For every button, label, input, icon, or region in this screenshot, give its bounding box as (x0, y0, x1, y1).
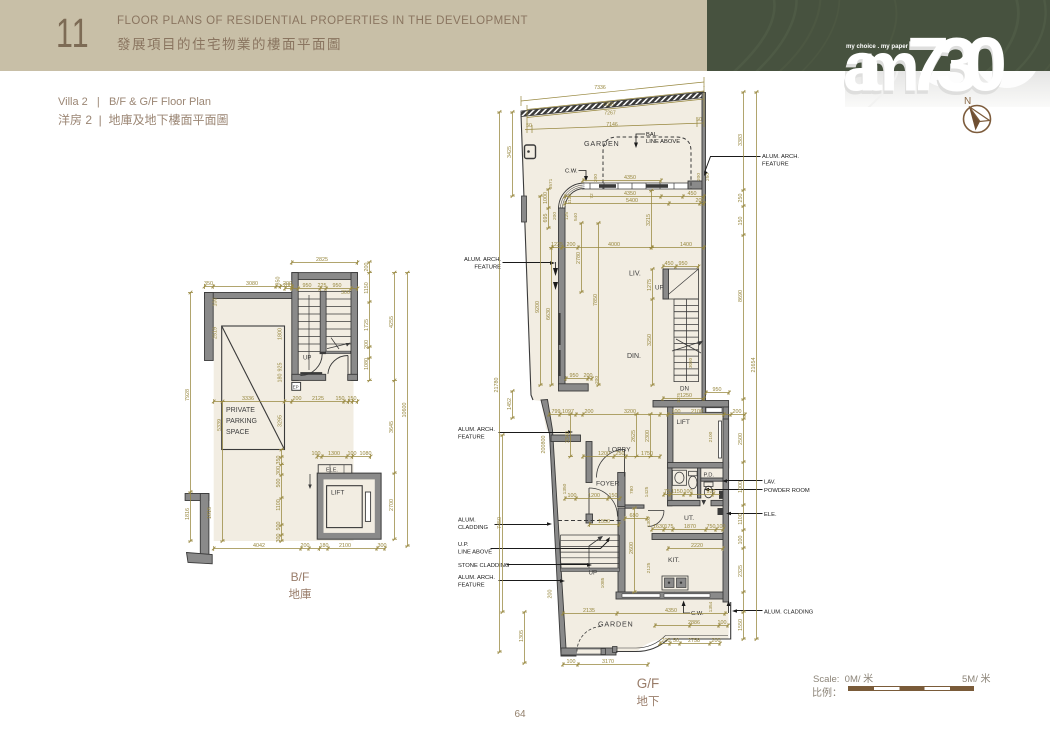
svg-text:7267: 7267 (604, 111, 616, 117)
svg-text:UP: UP (589, 570, 598, 577)
svg-text:50: 50 (526, 123, 532, 129)
svg-text:50: 50 (696, 117, 702, 123)
svg-text:2758: 2758 (688, 638, 700, 644)
svg-text:1100: 1100 (276, 499, 282, 511)
svg-text:1235: 1235 (551, 242, 563, 248)
svg-text:2220: 2220 (691, 543, 703, 549)
svg-text:200: 200 (712, 638, 721, 644)
svg-text:200: 200 (301, 543, 310, 549)
svg-text:2100: 2100 (339, 543, 351, 549)
svg-text:4350: 4350 (624, 175, 636, 181)
svg-text:5400: 5400 (626, 198, 638, 204)
svg-text:3645: 3645 (389, 421, 395, 433)
svg-text:1305: 1305 (519, 630, 525, 642)
svg-text:925: 925 (707, 489, 716, 495)
svg-text:BAL.: BAL. (646, 132, 659, 138)
svg-text:100: 100 (718, 620, 727, 626)
svg-text:200: 200 (696, 173, 702, 181)
svg-text:450: 450 (688, 191, 697, 197)
svg-text:1300: 1300 (646, 516, 652, 527)
svg-text:350: 350 (276, 456, 282, 465)
svg-text:SPACE: SPACE (226, 429, 250, 436)
svg-text:1816: 1816 (207, 507, 213, 519)
svg-text:950: 950 (570, 373, 579, 379)
svg-text:4000: 4000 (608, 242, 620, 248)
svg-text:150: 150 (336, 396, 345, 402)
svg-text:9200: 9200 (535, 301, 541, 313)
svg-text:3050: 3050 (688, 357, 693, 368)
svg-text:1350: 1350 (276, 277, 282, 289)
svg-text:950: 950 (679, 261, 688, 267)
svg-text:695: 695 (543, 214, 549, 223)
svg-text:225: 225 (318, 283, 327, 289)
svg-text:7336: 7336 (594, 85, 606, 91)
svg-text:300: 300 (276, 534, 282, 543)
svg-text:LIV.: LIV. (629, 271, 641, 278)
svg-text:925: 925 (278, 363, 284, 372)
svg-text:POWDER ROOM: POWDER ROOM (764, 488, 810, 494)
svg-text:7146: 7146 (606, 122, 618, 128)
svg-text:500: 500 (276, 479, 282, 488)
svg-text:LINE ABOVE: LINE ABOVE (646, 139, 680, 145)
svg-text:200: 200 (283, 281, 292, 287)
svg-text:150: 150 (348, 396, 357, 402)
svg-text:1725: 1725 (364, 319, 370, 331)
svg-text:3250: 3250 (647, 334, 653, 346)
svg-text:200: 200 (548, 590, 554, 599)
svg-text:UT.: UT. (684, 515, 694, 522)
svg-text:10600: 10600 (402, 403, 408, 418)
svg-text:ELE.: ELE. (326, 468, 338, 474)
svg-text:950: 950 (303, 283, 312, 289)
svg-text:200: 200 (567, 242, 576, 248)
svg-text:1550: 1550 (598, 519, 610, 525)
svg-text:7450: 7450 (497, 517, 503, 529)
svg-text:1085: 1085 (600, 577, 606, 588)
svg-text:750: 750 (707, 524, 716, 530)
svg-text:1300: 1300 (328, 451, 340, 457)
svg-text:200: 200 (585, 409, 594, 415)
svg-text:5339: 5339 (217, 419, 223, 431)
svg-text:2519: 2519 (213, 327, 219, 339)
svg-text:300: 300 (276, 466, 282, 475)
svg-text:GARDEN: GARDEN (598, 620, 634, 629)
svg-text:1425: 1425 (644, 486, 650, 497)
svg-text:DIN.: DIN. (627, 353, 641, 360)
svg-text:100: 100 (684, 489, 693, 495)
svg-text:3170: 3170 (602, 659, 614, 665)
svg-text:800: 800 (541, 436, 547, 445)
svg-text:7260: 7260 (602, 102, 614, 108)
svg-text:LINE ABOVE: LINE ABOVE (458, 550, 492, 556)
svg-text:3336: 3336 (242, 396, 254, 402)
svg-text:780: 780 (629, 486, 635, 494)
svg-text:200: 200 (584, 373, 593, 379)
svg-text:2300: 2300 (645, 430, 651, 442)
svg-text:2125: 2125 (312, 396, 324, 402)
svg-text:P.D.: P.D. (704, 473, 715, 479)
svg-text:21654: 21654 (751, 358, 757, 373)
svg-text:4042: 4042 (253, 543, 265, 549)
svg-text:1150: 1150 (364, 282, 370, 294)
svg-text:1075: 1075 (676, 392, 681, 403)
svg-text:250: 250 (616, 451, 625, 457)
svg-text:680: 680 (630, 513, 639, 519)
svg-text:2625: 2625 (631, 430, 637, 442)
svg-text:FEATURE: FEATURE (762, 162, 789, 168)
svg-text:100: 100 (717, 524, 726, 530)
svg-text:4350: 4350 (665, 608, 677, 614)
svg-text:250: 250 (738, 194, 744, 203)
svg-text:CLADDING: CLADDING (458, 525, 488, 531)
svg-text:950: 950 (333, 283, 342, 289)
svg-text:1080: 1080 (364, 358, 370, 370)
svg-text:FOYER: FOYER (596, 481, 620, 488)
svg-text:4255: 4255 (389, 316, 395, 328)
svg-text:200: 200 (662, 638, 671, 644)
svg-text:FEATURE: FEATURE (474, 265, 501, 271)
svg-text:2886: 2886 (688, 620, 700, 626)
svg-text:200: 200 (364, 263, 370, 272)
svg-text:ALUM. CLADDING: ALUM. CLADDING (764, 610, 814, 616)
svg-text:ALUM.: ALUM. (458, 518, 476, 524)
svg-text:1139: 1139 (567, 194, 573, 205)
svg-text:799: 799 (552, 409, 561, 415)
svg-text:100: 100 (738, 536, 744, 545)
svg-text:UP: UP (655, 285, 664, 292)
svg-text:UP: UP (303, 355, 311, 361)
svg-text:U.P.: U.P. (458, 542, 469, 548)
svg-text:1354: 1354 (708, 601, 714, 612)
svg-text:200: 200 (733, 409, 742, 415)
svg-text:1000: 1000 (543, 192, 549, 204)
svg-text:LAV.: LAV. (764, 480, 776, 486)
svg-text:EP: EP (293, 385, 299, 390)
svg-text:DN: DN (680, 386, 689, 393)
svg-text:100: 100 (568, 493, 577, 499)
svg-text:21780: 21780 (494, 378, 500, 393)
svg-text:540: 540 (573, 213, 579, 221)
svg-text:3215: 3215 (646, 214, 652, 226)
svg-text:2825: 2825 (316, 257, 328, 263)
svg-text:ALUM. ARCH.: ALUM. ARCH. (464, 257, 501, 263)
svg-text:KIT.: KIT. (668, 557, 680, 564)
svg-text:1452: 1452 (507, 398, 513, 410)
svg-text:200: 200 (293, 396, 302, 402)
svg-text:2780: 2780 (576, 252, 582, 264)
svg-text:150: 150 (738, 217, 744, 226)
svg-text:100: 100 (567, 659, 576, 665)
svg-text:8690: 8690 (738, 290, 744, 302)
svg-text:72: 72 (589, 193, 595, 199)
svg-text:ALUM. ARCH.: ALUM. ARCH. (458, 427, 495, 433)
svg-text:75: 75 (664, 489, 670, 495)
svg-text:LIFT: LIFT (331, 490, 344, 497)
svg-text:200: 200 (594, 376, 600, 384)
svg-text:6630: 6630 (546, 308, 552, 320)
svg-text:1150: 1150 (671, 489, 683, 495)
svg-text:1630: 1630 (653, 524, 665, 530)
svg-text:FEATURE: FEATURE (458, 435, 485, 441)
svg-text:200: 200 (552, 212, 558, 220)
svg-text:ALUM. ARCH.: ALUM. ARCH. (458, 575, 495, 581)
svg-text:50: 50 (673, 638, 679, 644)
svg-text:C.W.: C.W. (565, 169, 578, 175)
svg-text:100: 100 (213, 298, 219, 307)
svg-text:200: 200 (541, 445, 547, 454)
svg-text:FEATURE: FEATURE (458, 583, 485, 589)
svg-text:3080: 3080 (246, 281, 258, 287)
svg-text:1870: 1870 (684, 524, 696, 530)
svg-text:100: 100 (672, 409, 681, 415)
svg-text:1816: 1816 (185, 508, 191, 520)
svg-text:ALUM. ARCH.: ALUM. ARCH. (762, 154, 799, 160)
svg-text:300: 300 (341, 290, 350, 296)
svg-text:2600: 2600 (629, 542, 635, 554)
svg-text:4350: 4350 (624, 191, 636, 197)
svg-text:1080: 1080 (360, 451, 372, 457)
svg-text:1100: 1100 (738, 513, 744, 525)
svg-text:180: 180 (320, 543, 329, 549)
svg-text:200: 200 (364, 340, 370, 349)
svg-text:LIFT: LIFT (677, 419, 690, 426)
svg-text:180: 180 (278, 374, 284, 383)
svg-text:100: 100 (348, 451, 357, 457)
svg-text:7850: 7850 (593, 294, 599, 306)
svg-text:200: 200 (696, 198, 705, 204)
svg-text:1000: 1000 (738, 481, 744, 493)
svg-text:1200: 1200 (598, 451, 610, 457)
svg-text:450: 450 (665, 261, 674, 267)
svg-text:3425: 3425 (507, 146, 513, 158)
svg-text:ELE.: ELE. (764, 512, 777, 518)
svg-text:3295: 3295 (278, 415, 284, 427)
svg-text:950: 950 (713, 387, 722, 393)
svg-text:1571: 1571 (548, 178, 554, 189)
svg-text:3340: 3340 (565, 431, 571, 443)
svg-text:1400: 1400 (680, 242, 692, 248)
svg-text:3383: 3383 (738, 134, 744, 146)
svg-text:350: 350 (204, 281, 213, 287)
svg-text:150: 150 (609, 493, 618, 499)
svg-text:1800: 1800 (278, 328, 284, 340)
svg-text:2100: 2100 (691, 409, 703, 415)
svg-text:2325: 2325 (738, 565, 744, 577)
svg-text:175: 175 (665, 524, 674, 530)
svg-text:2135: 2135 (583, 608, 595, 614)
svg-text:PRIVATE: PRIVATE (226, 407, 255, 414)
svg-text:500: 500 (276, 522, 282, 531)
svg-text:250: 250 (705, 173, 711, 181)
svg-text:125: 125 (564, 212, 570, 220)
svg-text:2100: 2100 (708, 431, 714, 442)
svg-text:PARKING: PARKING (226, 418, 257, 425)
svg-text:2500: 2500 (738, 433, 744, 445)
svg-text:1550: 1550 (738, 619, 744, 631)
svg-text:2700: 2700 (389, 499, 395, 511)
svg-text:7928: 7928 (185, 389, 191, 401)
svg-text:GARDEN: GARDEN (584, 139, 620, 148)
svg-text:1275: 1275 (647, 279, 653, 291)
svg-text:2125: 2125 (646, 562, 652, 573)
svg-text:100: 100 (312, 451, 321, 457)
svg-text:C.W.: C.W. (691, 611, 704, 617)
svg-text:1350: 1350 (562, 483, 568, 494)
svg-text:1200: 1200 (588, 493, 600, 499)
svg-text:300: 300 (378, 543, 387, 549)
svg-text:1250: 1250 (680, 393, 692, 399)
